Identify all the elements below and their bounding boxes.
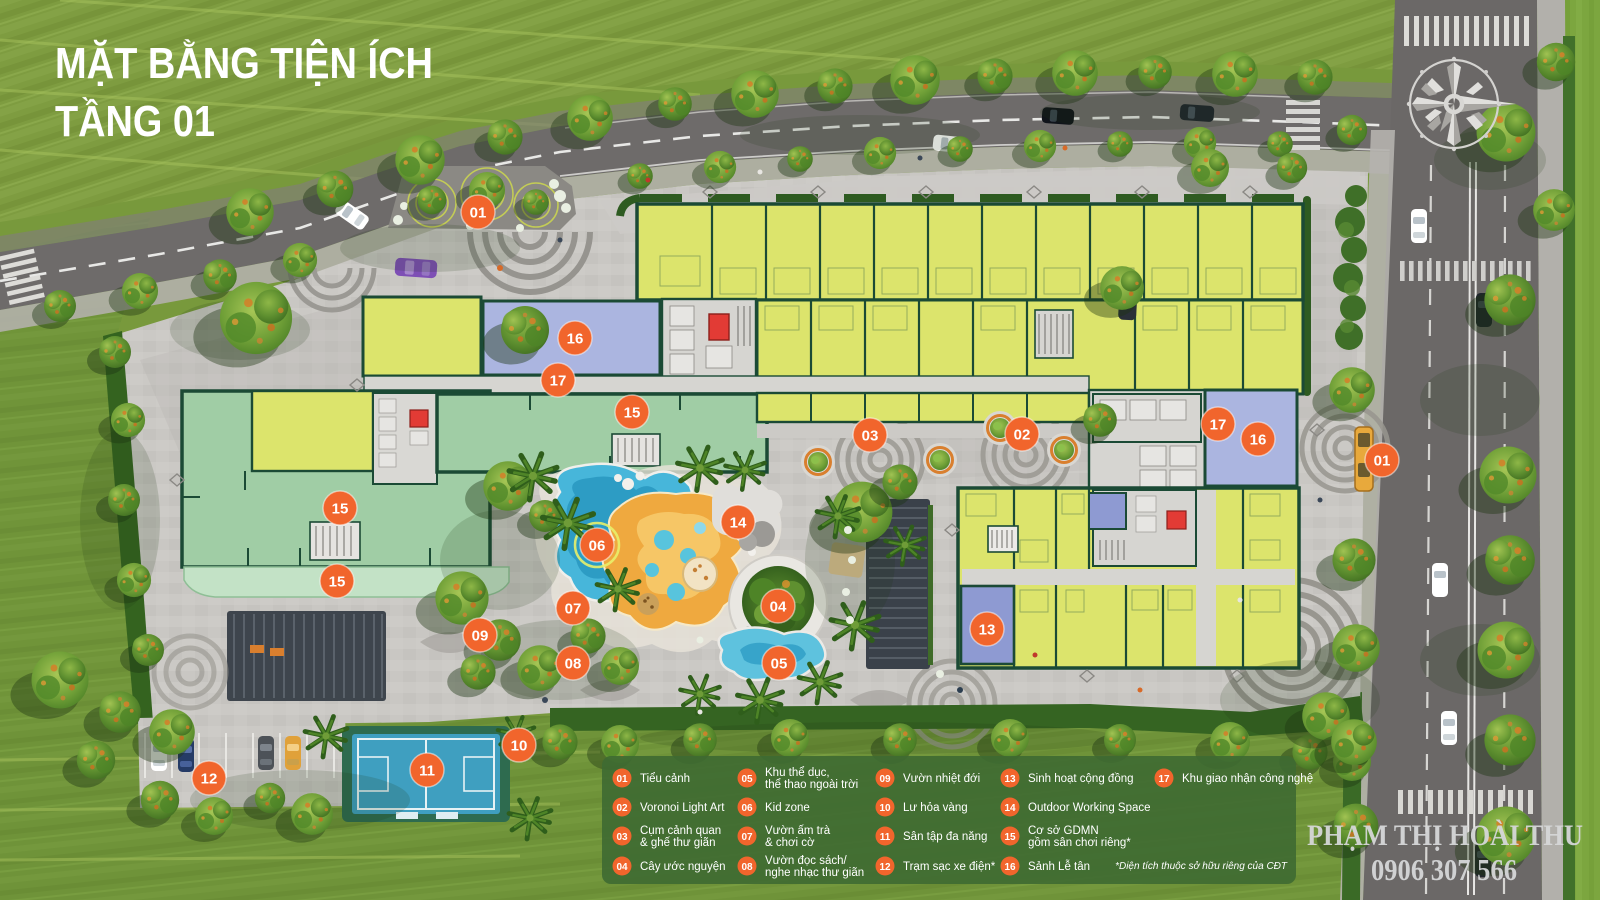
- svg-text:Cây ước nguyện: Cây ước nguyện: [640, 861, 726, 873]
- svg-text:Trạm sạc xe điện*: Trạm sạc xe điện*: [903, 861, 996, 873]
- svg-text:02: 02: [1014, 427, 1031, 444]
- svg-text:06: 06: [589, 538, 606, 555]
- svg-text:*Diện tích thuộc sở hữu riêng: *Diện tích thuộc sở hữu riêng của CĐT: [1115, 860, 1288, 872]
- svg-text:Tiểu cảnh: Tiểu cảnh: [640, 773, 690, 785]
- svg-text:nghe nhạc thư giãn: nghe nhạc thư giãn: [765, 867, 864, 879]
- svg-text:16: 16: [1250, 432, 1267, 449]
- svg-text:15: 15: [624, 405, 641, 422]
- svg-text:12: 12: [879, 862, 891, 873]
- svg-text:01: 01: [616, 774, 628, 785]
- svg-text:04: 04: [770, 599, 787, 616]
- svg-text:0906 307 566: 0906 307 566: [1371, 852, 1517, 887]
- svg-text:07: 07: [565, 601, 582, 618]
- svg-text:Sảnh Lễ tân: Sảnh Lễ tân: [1028, 860, 1090, 873]
- svg-text:09: 09: [879, 774, 891, 785]
- svg-text:01: 01: [470, 205, 487, 222]
- svg-text:03: 03: [862, 428, 879, 445]
- svg-text:Vườn ấm trà: Vườn ấm trà: [765, 825, 831, 837]
- svg-text:Outdoor Working Space: Outdoor Working Space: [1028, 802, 1151, 814]
- svg-text:Cụm cảnh quan: Cụm cảnh quan: [640, 825, 721, 837]
- svg-text:& ghế thư giãn: & ghế thư giãn: [640, 837, 715, 849]
- svg-text:11: 11: [880, 832, 891, 843]
- svg-text:MẶT BẰNG TIỆN ÍCH: MẶT BẰNG TIỆN ÍCH: [55, 38, 433, 88]
- svg-text:Vườn đọc sách/: Vườn đọc sách/: [765, 855, 848, 867]
- svg-text:06: 06: [741, 803, 753, 814]
- svg-text:09: 09: [472, 628, 489, 645]
- svg-text:13: 13: [1004, 774, 1016, 785]
- svg-text:10: 10: [879, 803, 891, 814]
- svg-text:17: 17: [1158, 774, 1170, 785]
- svg-text:gồm sân chơi riêng*: gồm sân chơi riêng*: [1028, 837, 1131, 849]
- svg-text:16: 16: [1004, 862, 1016, 873]
- svg-text:Cơ sở GDMN: Cơ sở GDMN: [1028, 825, 1099, 837]
- svg-text:Lư hỏa vàng: Lư hỏa vàng: [903, 802, 968, 814]
- svg-text:14: 14: [730, 515, 747, 532]
- svg-text:02: 02: [616, 803, 628, 814]
- svg-text:04: 04: [616, 862, 628, 873]
- svg-text:17: 17: [550, 373, 567, 390]
- svg-text:17: 17: [1210, 417, 1227, 434]
- svg-text:Khu thể dục,: Khu thể dục,: [765, 767, 830, 779]
- svg-text:11: 11: [419, 763, 435, 780]
- svg-text:Khu giao nhận công nghệ: Khu giao nhận công nghệ: [1182, 773, 1313, 785]
- svg-text:& chơi cờ: & chơi cờ: [765, 837, 815, 849]
- svg-text:12: 12: [201, 771, 218, 788]
- svg-text:14: 14: [1004, 803, 1016, 814]
- svg-text:05: 05: [771, 656, 788, 673]
- svg-text:15: 15: [329, 574, 346, 591]
- svg-text:01: 01: [1374, 453, 1391, 470]
- svg-text:PHẠM THỊ HOÀI THU: PHẠM THỊ HOÀI THU: [1307, 819, 1583, 852]
- svg-text:Voronoi Light Art: Voronoi Light Art: [640, 802, 725, 814]
- svg-text:15: 15: [1004, 832, 1016, 843]
- svg-text:07: 07: [741, 832, 753, 843]
- svg-text:TẦNG 01: TẦNG 01: [55, 96, 215, 146]
- svg-text:08: 08: [565, 656, 582, 673]
- svg-text:Kid zone: Kid zone: [765, 802, 810, 814]
- svg-text:Sân tập đa năng: Sân tập đa năng: [903, 831, 987, 843]
- svg-text:15: 15: [332, 501, 349, 518]
- svg-text:13: 13: [979, 622, 996, 639]
- svg-text:08: 08: [741, 862, 753, 873]
- svg-text:thể thao ngoài trời: thể thao ngoài trời: [765, 779, 858, 791]
- svg-text:05: 05: [741, 774, 753, 785]
- svg-text:Vườn nhiệt đới: Vườn nhiệt đới: [903, 773, 980, 785]
- svg-text:03: 03: [616, 832, 628, 843]
- svg-text:Sinh hoạt cộng đồng: Sinh hoạt cộng đồng: [1028, 773, 1134, 785]
- svg-text:16: 16: [567, 331, 584, 348]
- svg-text:10: 10: [511, 738, 528, 755]
